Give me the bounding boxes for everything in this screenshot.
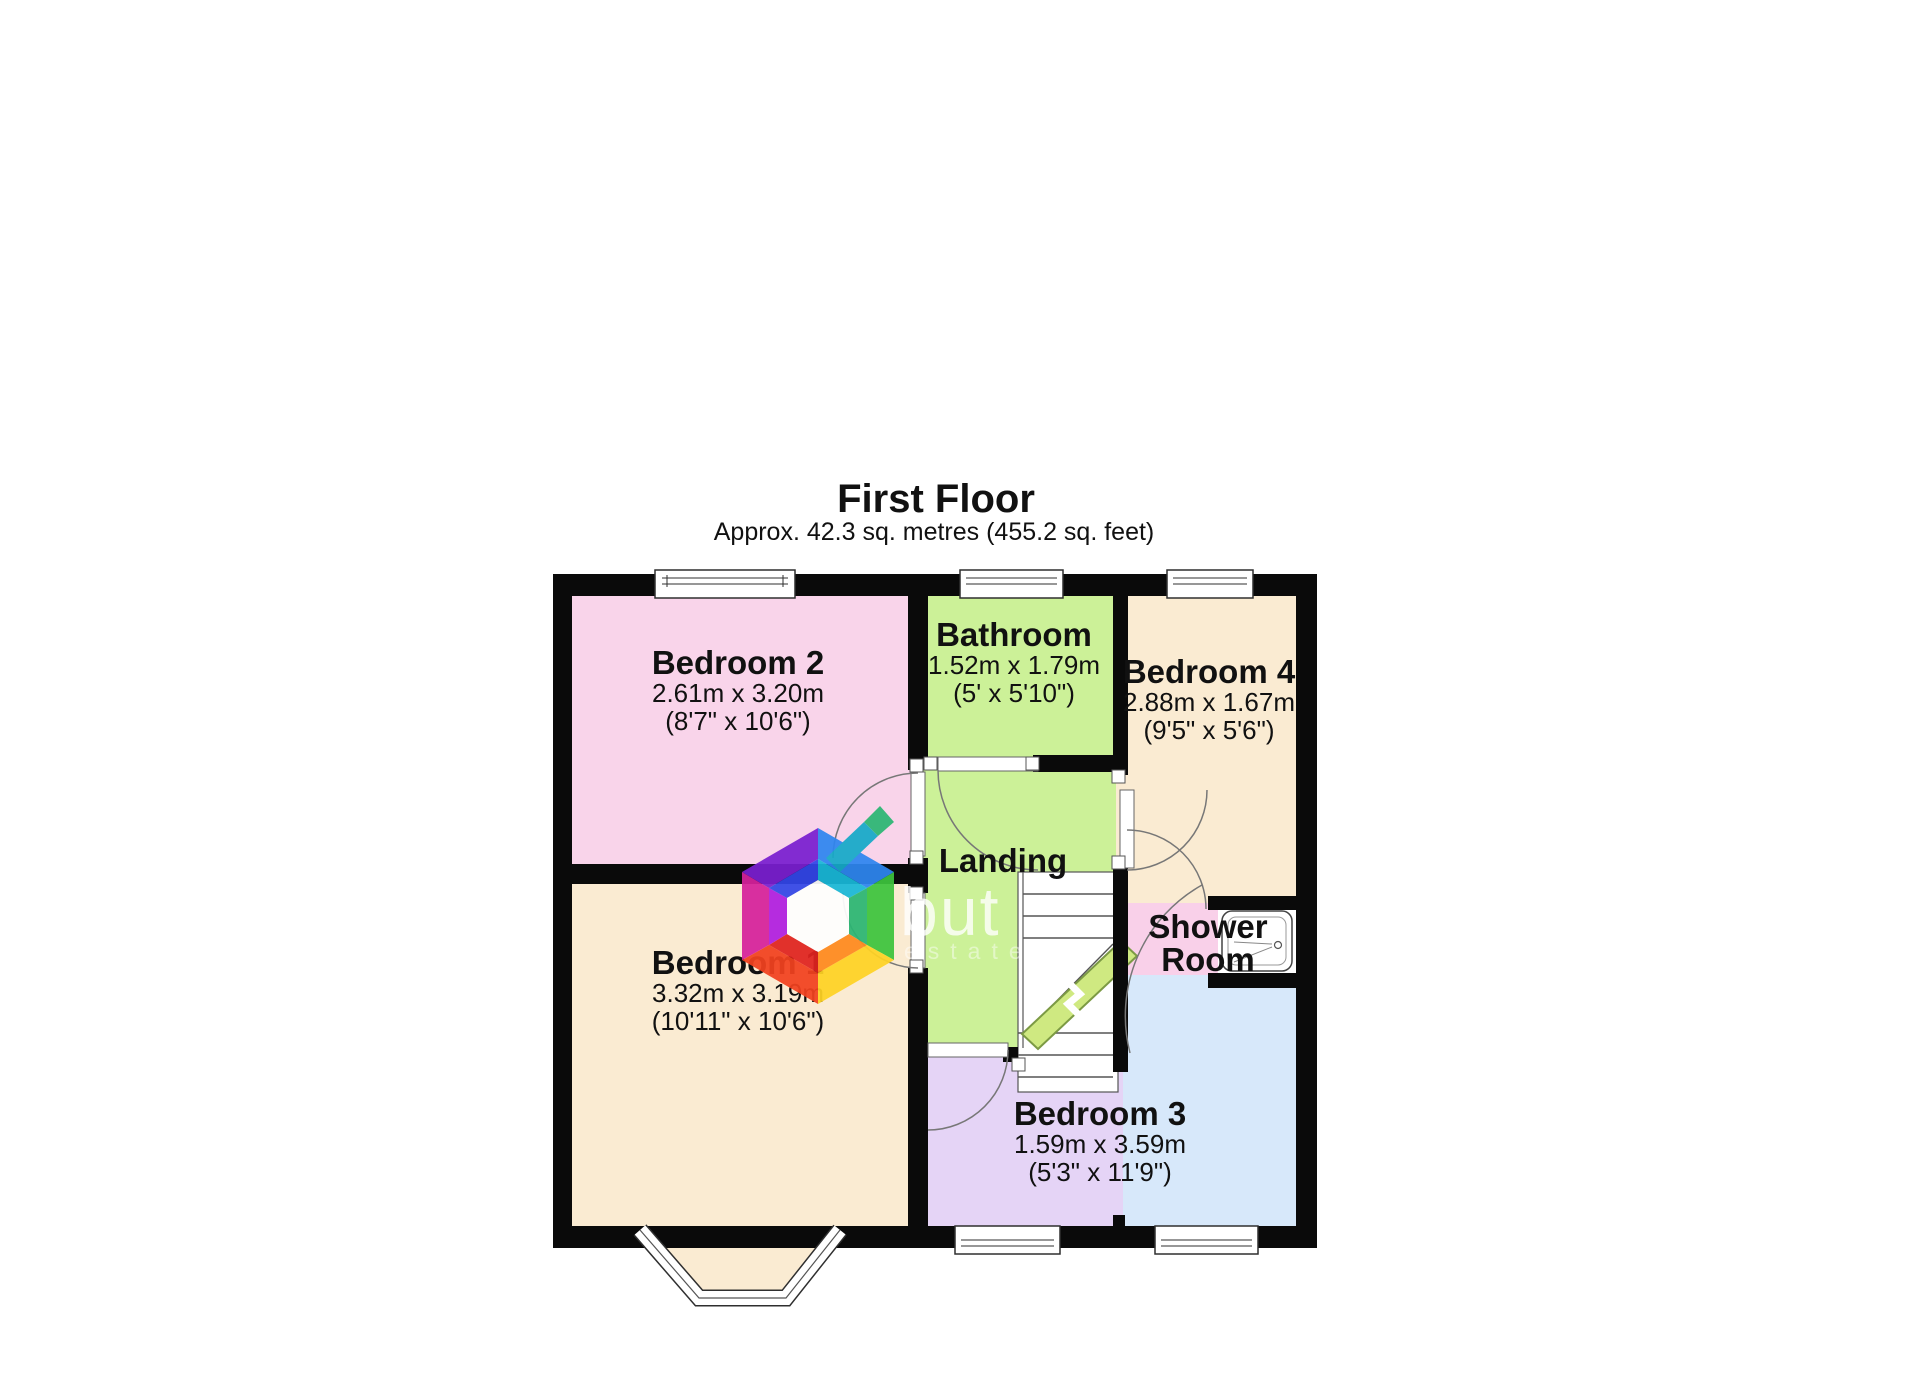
window-bedroom3 — [955, 1226, 1060, 1254]
window-bedroom2 — [655, 570, 795, 598]
bedroom2-floor — [562, 586, 918, 874]
wall-stairs-right — [1113, 867, 1128, 1072]
bedroom1-door-leaf — [911, 893, 925, 968]
bathroom-door-leaf — [938, 757, 1038, 771]
wall-bathroom-bottom — [1033, 755, 1128, 772]
bedroom3-blue-floor — [1123, 975, 1305, 1238]
wall-shower-bottom — [1208, 973, 1296, 988]
bedroom4-floor — [1116, 586, 1306, 910]
shower-room-floor — [1123, 903, 1218, 975]
bedroom3-door-leaf — [928, 1043, 1008, 1057]
wall-bathroom-bedroom4 — [1113, 574, 1128, 775]
wall-bedroom2-bathroom — [908, 574, 928, 770]
wall-left — [553, 574, 572, 1248]
wall-bedroom1-bedroom3 — [908, 968, 928, 1226]
room-fills — [562, 586, 1306, 1294]
bedroom2-door-leaf — [911, 772, 925, 856]
wall-bedroom3-stub — [1113, 1215, 1125, 1228]
window-bedroom4 — [1167, 570, 1253, 598]
bedroom1-floor — [562, 874, 918, 1238]
wall-right — [1296, 574, 1317, 1248]
bathroom-floor — [918, 586, 1123, 766]
window-bathroom — [960, 570, 1063, 598]
wall-bedroom1-bedroom2 — [553, 864, 918, 884]
shower-tray-icon — [1222, 911, 1292, 971]
window-bedroom3-blue — [1155, 1226, 1258, 1254]
wall-shower-top — [1208, 896, 1296, 910]
floorplan-page: First Floor Approx. 42.3 sq. metres (455… — [0, 0, 1920, 1397]
floorplan-drawing — [0, 0, 1920, 1397]
